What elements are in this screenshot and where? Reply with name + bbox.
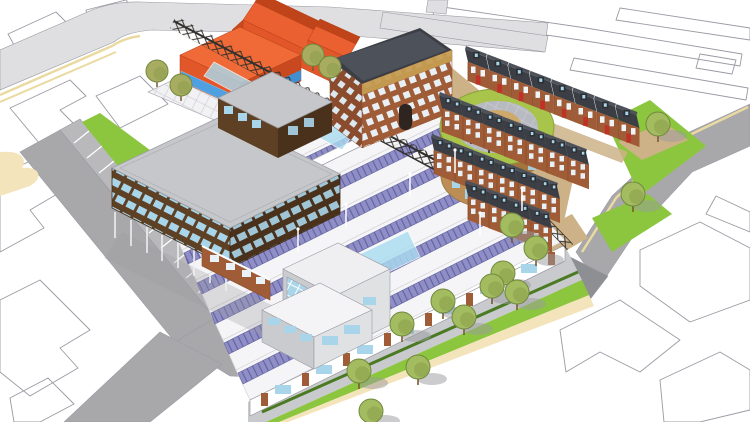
architectural-render	[0, 0, 750, 422]
archway	[399, 104, 412, 130]
north-road-stub	[426, 0, 448, 14]
render-canvas	[0, 0, 750, 422]
